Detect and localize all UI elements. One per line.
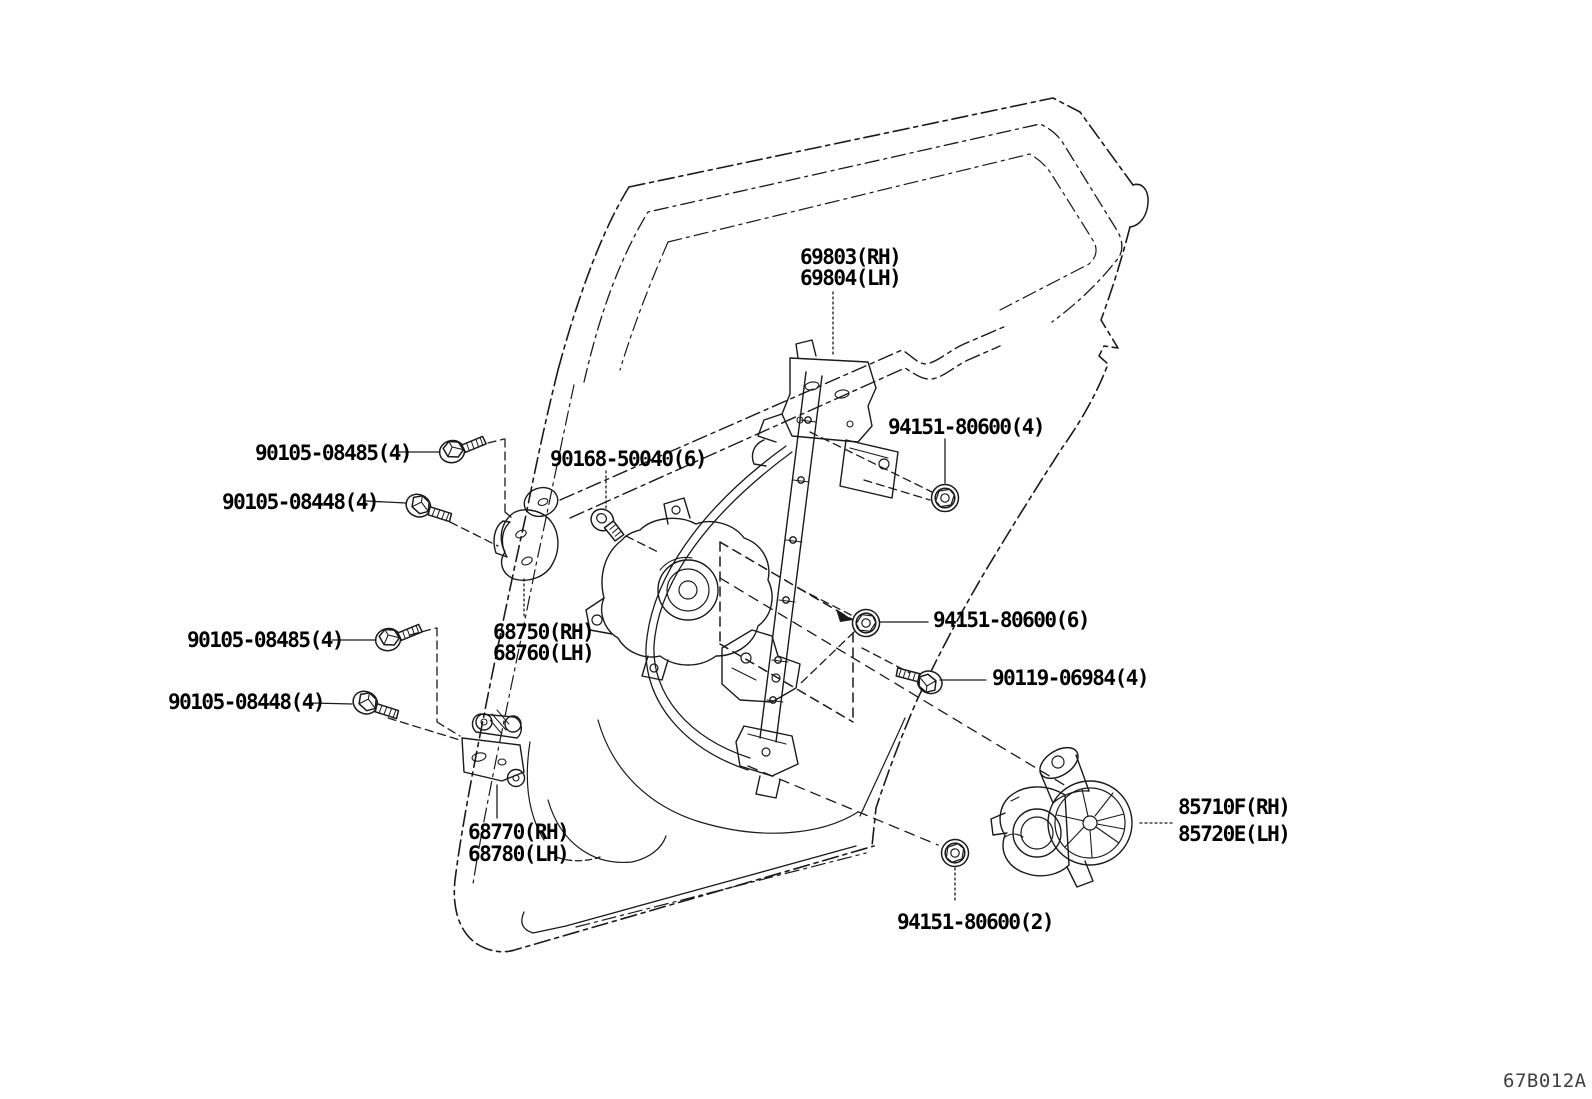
label-motor-rh: 85710F(RH)	[1178, 797, 1289, 818]
label-bolt-rear: 90119-06984(4)	[992, 668, 1148, 689]
label-bolt-front-lower-1: 90105-08485(4)	[187, 630, 343, 651]
label-nut-lower: 94151-80600(2)	[897, 912, 1053, 933]
label-hinge-upper-lh: 68760(LH)	[493, 643, 593, 664]
hex-bolt-icon	[438, 434, 489, 465]
hex-bolt-icon	[374, 622, 425, 653]
hex-bolt-icon	[893, 658, 945, 698]
window-regulator-assembly	[586, 340, 898, 798]
label-bolt-front-upper-1: 90105-08485(4)	[255, 443, 411, 464]
parts-diagram-page: 69803(RH) 69804(LH) 90105-08485(4) 90105…	[0, 0, 1592, 1099]
flange-nut-icon	[932, 485, 959, 512]
label-window-guide-lh: 69804(LH)	[800, 268, 900, 289]
upper-hinge-part	[494, 483, 562, 580]
diagram-line-art	[0, 0, 1592, 1099]
hex-bolt-icon	[402, 490, 454, 532]
hex-bolt-icon	[349, 687, 401, 729]
flange-nut-icon	[939, 837, 970, 868]
flange-nut-icon	[849, 606, 882, 639]
label-hinge-lower-lh: 68780(LH)	[468, 844, 568, 865]
label-nut-mid: 94151-80600(6)	[933, 610, 1089, 631]
label-hinge-lower-rh: 68770(RH)	[468, 822, 568, 843]
label-screw-regulator: 90168-50040(6)	[550, 449, 706, 470]
label-motor-lh: 85720E(LH)	[1178, 824, 1289, 845]
label-window-guide-rh: 69803(RH)	[800, 247, 900, 268]
window-motor-part	[991, 741, 1132, 887]
screw-icon	[587, 505, 630, 543]
label-nut-upper: 94151-80600(4)	[888, 417, 1044, 438]
label-bolt-front-upper-2: 90105-08448(4)	[222, 492, 378, 513]
diagram-code: 67B012A	[1503, 1070, 1587, 1092]
label-hinge-upper-rh: 68750(RH)	[493, 622, 593, 643]
label-bolt-front-lower-2: 90105-08448(4)	[168, 692, 324, 713]
